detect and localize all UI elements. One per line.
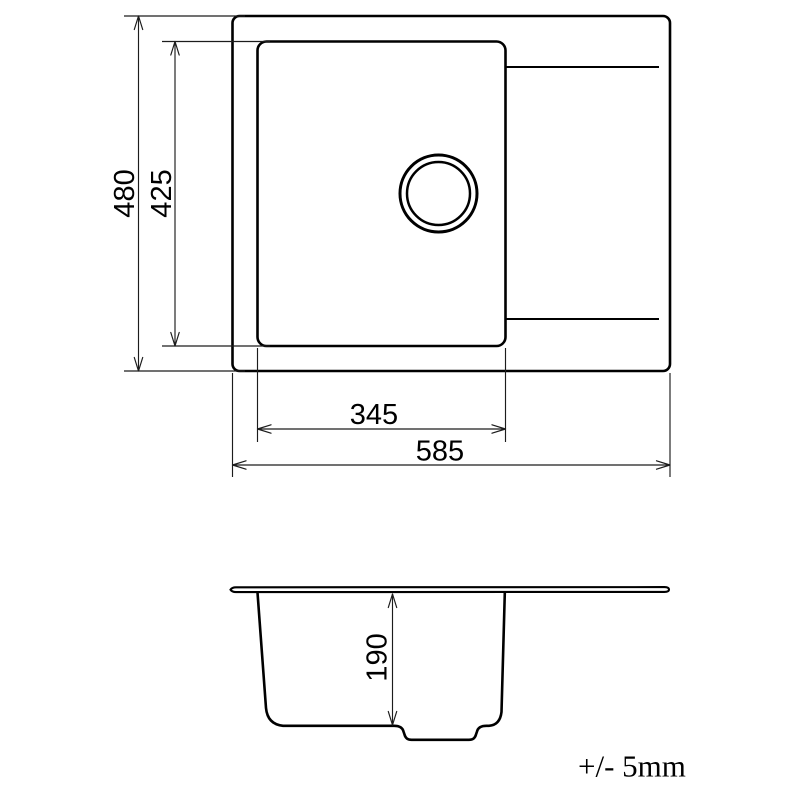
svg-text:585: 585 — [416, 436, 464, 468]
svg-text:190: 190 — [362, 633, 394, 681]
svg-text:480: 480 — [109, 169, 141, 217]
svg-text:345: 345 — [350, 399, 398, 431]
svg-text:+/- 5mm: +/- 5mm — [578, 749, 686, 784]
svg-text:425: 425 — [146, 169, 178, 217]
